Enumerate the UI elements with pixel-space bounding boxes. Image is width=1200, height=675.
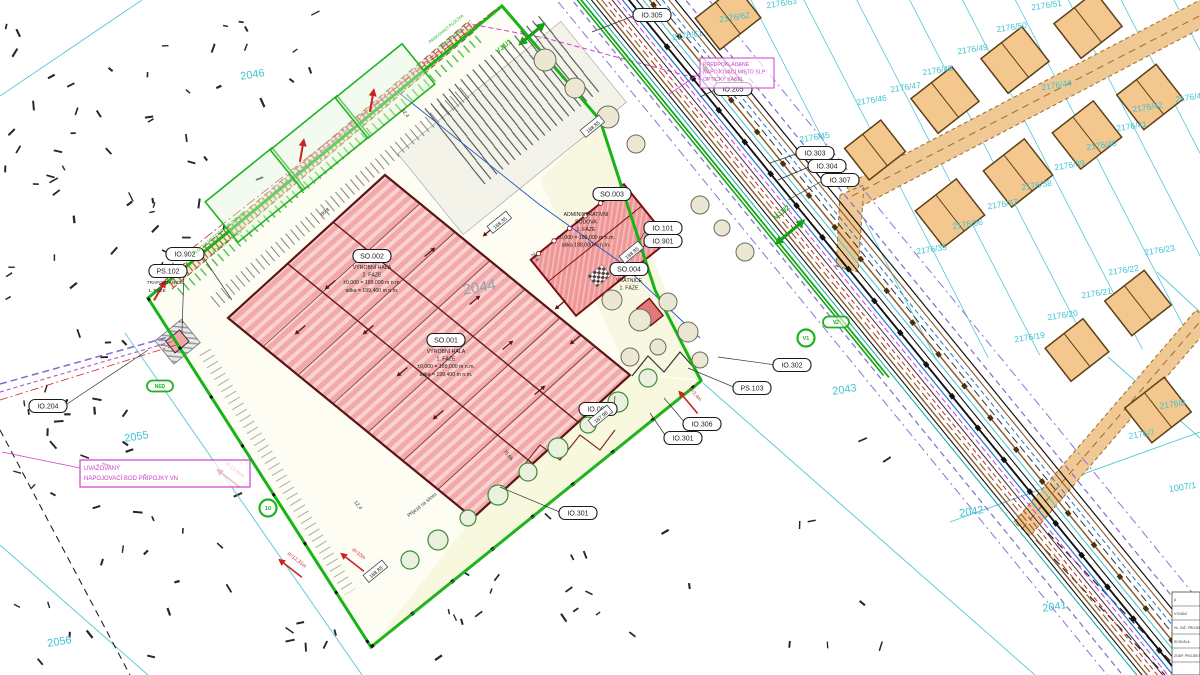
svg-text:2176/61: 2176/61 xyxy=(672,28,704,43)
svg-text:SO.002: SO.002 xyxy=(360,253,384,260)
svg-text:2176/47: 2176/47 xyxy=(890,80,922,95)
svg-text:BUDOVA: BUDOVA xyxy=(575,220,597,226)
svg-text:IO.301: IO.301 xyxy=(567,510,588,517)
svg-text:SO.004: SO.004 xyxy=(617,266,641,273)
svg-text:2. FÁZE: 2. FÁZE xyxy=(362,272,382,279)
drawing-viewport: d=10md=12,31md=13,65md=2,4mV110V2NED IO.… xyxy=(0,0,1200,675)
svg-text:VÝROBNÍ HALA: VÝROBNÍ HALA xyxy=(427,348,466,355)
svg-text:atika 198,000 m n.m.: atika 198,000 m n.m. xyxy=(562,242,610,248)
svg-text:SCHVÁLIL: SCHVÁLIL xyxy=(1174,640,1191,644)
svg-text:ADMINISTRATIVNÍ: ADMINISTRATIVNÍ xyxy=(564,211,609,218)
svg-text:HL. INŽ. PROJEKTU: HL. INŽ. PROJEKTU xyxy=(1174,625,1200,630)
svg-text:±0,000 = 189,000 m n.m.: ±0,000 = 189,000 m n.m. xyxy=(417,364,475,370)
svg-text:2176/63: 2176/63 xyxy=(766,0,798,10)
svg-text:VRÁTNICE: VRÁTNICE xyxy=(616,277,643,284)
vn-utility xyxy=(0,336,172,384)
svg-text:IO.303: IO.303 xyxy=(804,150,825,157)
svg-text:V2: V2 xyxy=(833,320,839,326)
svg-text:2176/39: 2176/39 xyxy=(1054,158,1086,173)
svg-text:2176/23: 2176/23 xyxy=(1144,243,1176,258)
svg-text:±0,000 = 189,000 m n.m.: ±0,000 = 189,000 m n.m. xyxy=(557,235,615,241)
svg-text:IO.204: IO.204 xyxy=(37,403,58,410)
svg-text:2176/51: 2176/51 xyxy=(1031,0,1063,12)
svg-text:ZODP. PROJEKTANT: ZODP. PROJEKTANT xyxy=(1174,654,1200,658)
svg-text:2041: 2041 xyxy=(1042,599,1068,615)
svg-text:1007/1: 1007/1 xyxy=(1168,480,1197,494)
note-vn-connection: UVAŽOVANÝ NAPOJOVACÍ BOD PŘÍPOJKY VN xyxy=(2,452,250,487)
svg-text:TRAFOSTANICE: TRAFOSTANICE xyxy=(147,280,184,286)
svg-text:2042: 2042 xyxy=(959,504,985,520)
svg-text:2055: 2055 xyxy=(124,429,150,445)
svg-text:atika = 199,400 m n.m.: atika = 199,400 m n.m. xyxy=(346,288,399,294)
svg-text:1. FÁZE: 1. FÁZE xyxy=(148,287,166,294)
svg-text:NED: NED xyxy=(155,384,166,390)
note-line: OPTICKÝ KABEL xyxy=(703,76,744,83)
svg-text:IO.301: IO.301 xyxy=(672,435,693,442)
svg-text:2043: 2043 xyxy=(832,382,858,398)
svg-text:IO.305: IO.305 xyxy=(641,12,662,19)
note-line: PŘEDPOKLÁDANÉ xyxy=(703,60,750,68)
svg-text:IO.901: IO.901 xyxy=(652,238,673,245)
svg-text:±0,000 = 189,000 m n.m.: ±0,000 = 189,000 m n.m. xyxy=(343,280,401,286)
vn-utility xyxy=(0,345,176,400)
svg-text:2056: 2056 xyxy=(47,634,73,650)
svg-text:IO.302: IO.302 xyxy=(781,362,802,369)
note-line: NAPOJOVACÍ BOD PŘÍPOJKY VN xyxy=(84,474,178,482)
svg-text:1. FÁZE: 1. FÁZE xyxy=(619,285,639,292)
svg-text:atika = 199,400 m n.m.: atika = 199,400 m n.m. xyxy=(420,372,473,378)
svg-text:2176/41: 2176/41 xyxy=(1116,119,1148,134)
svg-text:2176/19: 2176/19 xyxy=(1014,330,1046,345)
svg-text:10: 10 xyxy=(265,506,271,512)
site-plan-canvas: d=10md=12,31md=13,65md=2,4mV110V2NED IO.… xyxy=(0,0,1200,675)
svg-text:IO.304: IO.304 xyxy=(816,163,837,170)
svg-text:VYDÁNÍ: VYDÁNÍ xyxy=(1174,612,1187,616)
svg-text:2176/20: 2176/20 xyxy=(1047,308,1079,323)
svg-text:d=2,4m: d=2,4m xyxy=(687,386,702,403)
svg-text:2176/45: 2176/45 xyxy=(799,130,831,145)
svg-text:IO.307: IO.307 xyxy=(829,177,850,184)
note-line: UVAŽOVANÝ xyxy=(84,464,120,472)
svg-text:PS.103: PS.103 xyxy=(741,385,764,392)
svg-text:IO.101: IO.101 xyxy=(652,225,673,232)
svg-text:1. FÁZE: 1. FÁZE xyxy=(576,226,596,233)
svg-text:SO.001: SO.001 xyxy=(434,337,458,344)
title-block: AVYDÁNÍHL. INŽ. PROJEKTUSCHVÁLILZODP. PR… xyxy=(1172,592,1200,675)
svg-text:PS.102: PS.102 xyxy=(157,268,180,275)
note-line: NAPOJOVACÍ MÍSTO SLP xyxy=(703,69,766,76)
svg-text:2176/46: 2176/46 xyxy=(856,93,888,108)
svg-text:V1: V1 xyxy=(803,336,810,342)
svg-text:2176/49: 2176/49 xyxy=(957,42,989,57)
svg-text:SO.003: SO.003 xyxy=(600,191,624,198)
svg-text:2046: 2046 xyxy=(240,67,266,83)
svg-text:2176/35: 2176/35 xyxy=(916,242,948,257)
svg-text:IO.306: IO.306 xyxy=(691,421,712,428)
svg-text:VÝROBNÍ HALA: VÝROBNÍ HALA xyxy=(353,264,392,271)
svg-text:1. FÁZE: 1. FÁZE xyxy=(436,356,456,363)
svg-text:2176/37: 2176/37 xyxy=(987,197,1019,212)
svg-text:2176/22: 2176/22 xyxy=(1108,263,1140,278)
